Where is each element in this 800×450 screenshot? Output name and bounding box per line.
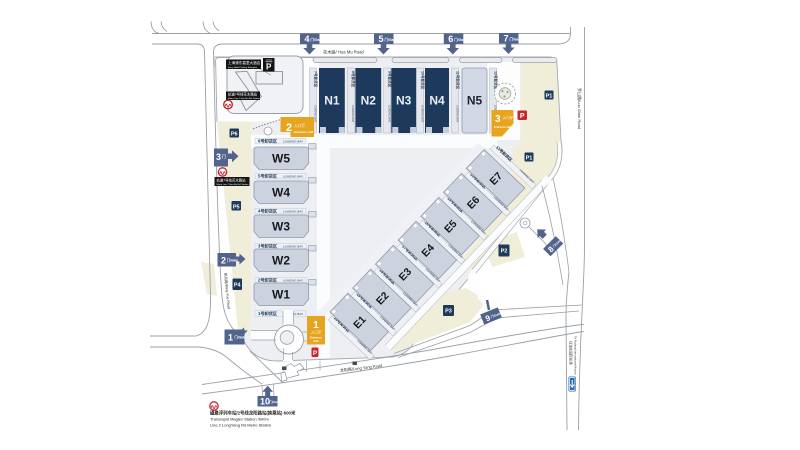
- svg-text:P: P: [313, 350, 318, 357]
- svg-text:LOADING BAY: LOADING BAY: [420, 105, 424, 123]
- svg-text:门/Gate: 门/Gate: [311, 37, 323, 42]
- svg-text:N1: N1: [324, 94, 340, 108]
- svg-text:Transrapid Maglev Station /600: Transrapid Maglev Station /600m: [210, 417, 269, 422]
- svg-text:轨道7号线花木路站: 轨道7号线花木路站: [228, 92, 258, 97]
- svg-text:P2: P2: [501, 249, 508, 255]
- svg-text:花木路/ Hua Mu Road: 花木路/ Hua Mu Road: [323, 49, 364, 56]
- svg-text:入口厅: 入口厅: [294, 123, 306, 128]
- svg-text:W1: W1: [272, 288, 290, 302]
- svg-text:Kerry Hotel Pudong Shanghai: Kerry Hotel Pudong Shanghai: [228, 66, 257, 69]
- svg-text:罗山路/Luo Shan Road: 罗山路/Luo Shan Road: [577, 88, 583, 129]
- svg-text:往浦东国际机场: 往浦东国际机场: [569, 341, 574, 365]
- svg-text:LOADING BAY: LOADING BAY: [283, 209, 303, 213]
- svg-text:P6: P6: [231, 132, 238, 138]
- svg-text:4: 4: [305, 34, 310, 44]
- svg-text:P3: P3: [445, 309, 452, 315]
- svg-text:P5: P5: [233, 205, 240, 211]
- svg-text:LOADING BAY: LOADING BAY: [283, 174, 303, 178]
- svg-text:6: 6: [448, 34, 453, 44]
- svg-text:N3: N3: [396, 94, 412, 108]
- svg-text:门: 门: [222, 154, 226, 159]
- svg-text:1: 1: [313, 320, 319, 331]
- svg-text:3: 3: [216, 152, 221, 162]
- svg-text:3: 3: [495, 114, 501, 125]
- svg-text:P: P: [266, 63, 272, 72]
- svg-text:N5: N5: [467, 94, 483, 108]
- svg-text:门/Gate: 门/Gate: [235, 335, 246, 340]
- svg-text:LOADING BAY: LOADING BAY: [283, 278, 303, 282]
- svg-text:N4: N4: [429, 94, 445, 108]
- svg-text:P1: P1: [526, 156, 533, 162]
- svg-text:门/Gate: 门/Gate: [510, 37, 522, 42]
- svg-text:Metro Line 7 Hua Mu Rd. Statio: Metro Line 7 Hua Mu Rd. Station: [228, 97, 261, 100]
- svg-text:7: 7: [504, 34, 509, 44]
- svg-text:6号卸货区: 6号卸货区: [258, 138, 278, 145]
- svg-text:2: 2: [221, 256, 226, 266]
- svg-text:5号卸货区: 5号卸货区: [258, 173, 278, 180]
- svg-text:上海浦东嘉里大酒店: 上海浦东嘉里大酒店: [228, 60, 261, 65]
- svg-text:门/Gate: 门/Gate: [385, 37, 397, 42]
- svg-text:LOADING BAY: LOADING BAY: [387, 105, 391, 123]
- svg-text:P1: P1: [546, 94, 553, 100]
- svg-text:1: 1: [228, 333, 233, 343]
- svg-text:W3: W3: [272, 220, 290, 234]
- svg-text:轨道7号线花木路站: 轨道7号线花木路站: [217, 177, 247, 182]
- svg-text:门/Gate: 门/Gate: [227, 258, 238, 263]
- svg-text:To Pudong International Airpor: To Pudong International Airport: [574, 336, 578, 375]
- svg-text:W4: W4: [272, 186, 290, 200]
- svg-text:1号卸货区: 1号卸货区: [258, 310, 278, 317]
- svg-text:Metro Line 7 Hua Mu Rd. Statio: Metro Line 7 Hua Mu Rd. Station: [217, 183, 250, 186]
- svg-text:门/Gate: 门/Gate: [454, 37, 466, 42]
- svg-text:LOADING BAY: LOADING BAY: [283, 244, 303, 248]
- svg-text:P: P: [520, 113, 525, 120]
- svg-text:入口厅: 入口厅: [503, 115, 514, 120]
- svg-text:Entrance Hall: Entrance Hall: [294, 130, 313, 134]
- svg-text:N2: N2: [361, 94, 377, 108]
- svg-text:Entrance Hall: Entrance Hall: [494, 125, 512, 129]
- svg-text:Line 2 LongYang Rd.Metro Stati: Line 2 LongYang Rd.Metro Station: [210, 423, 271, 428]
- svg-text:2: 2: [286, 122, 292, 134]
- svg-text:W5: W5: [272, 152, 290, 166]
- svg-text:7号卸货区: 7号卸货区: [314, 71, 319, 88]
- svg-text:LOADING BAY: LOADING BAY: [283, 139, 303, 143]
- svg-text:LOADING BAY: LOADING BAY: [455, 105, 459, 123]
- svg-text:P4: P4: [234, 283, 242, 289]
- svg-text:11号卸货区: 11号卸货区: [456, 71, 461, 90]
- svg-text:磁悬浮列车站/2号线龙阳路站(换乘站) 600米: 磁悬浮列车站/2号线龙阳路站(换乘站) 600米: [210, 410, 296, 417]
- svg-text:Hall: Hall: [313, 339, 318, 343]
- svg-text:4号卸货区: 4号卸货区: [258, 208, 278, 215]
- svg-text:10: 10: [260, 397, 270, 407]
- svg-text:W2: W2: [272, 254, 290, 268]
- svg-text:入口厅: 入口厅: [311, 330, 322, 335]
- svg-text:10号卸货区: 10号卸货区: [421, 71, 426, 90]
- svg-text:门/Gate: 门/Gate: [270, 399, 281, 404]
- svg-text:5: 5: [379, 34, 384, 44]
- svg-text:LOADING BAY: LOADING BAY: [351, 105, 355, 123]
